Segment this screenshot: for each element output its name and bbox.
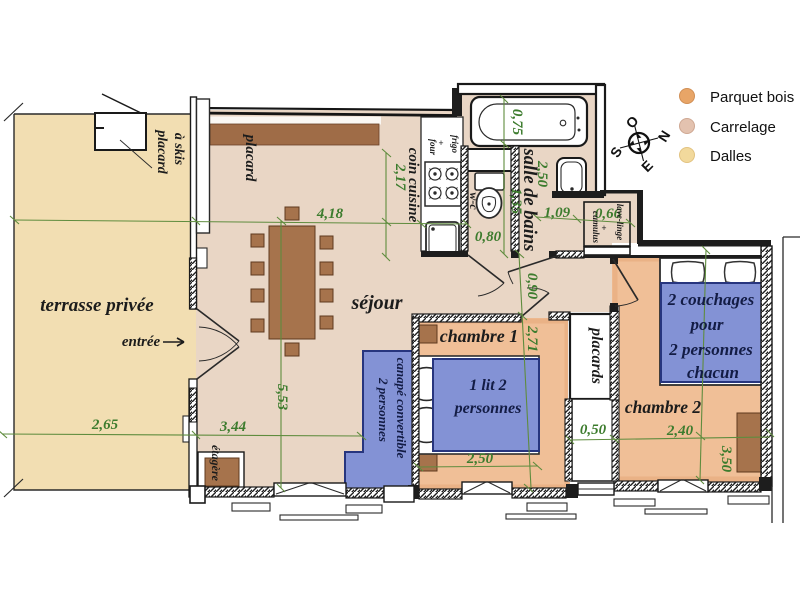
svg-text:0,75: 0,75 — [509, 109, 525, 136]
svg-text:O: O — [622, 112, 641, 131]
svg-text:Carrelage: Carrelage — [710, 119, 776, 136]
svg-text:cumulus: cumulus — [591, 211, 601, 244]
svg-text:placard: placard — [242, 133, 258, 182]
svg-text:chambre 1: chambre 1 — [440, 326, 519, 346]
svg-text:2 couchages: 2 couchages — [667, 290, 755, 309]
svg-text:four: four — [428, 139, 438, 156]
svg-text:à skis: à skis — [171, 133, 186, 166]
svg-text:coin cuisine: coin cuisine — [405, 148, 421, 223]
svg-text:placards: placards — [588, 326, 605, 384]
svg-text:entrée: entrée — [122, 334, 161, 350]
svg-text:w-c: w-c — [467, 192, 481, 210]
svg-text:chacun: chacun — [687, 363, 739, 382]
svg-text:étagère: étagère — [209, 445, 223, 482]
svg-text:5,53: 5,53 — [274, 384, 290, 411]
svg-text:lave-linge: lave-linge — [615, 204, 625, 241]
svg-text:0,80: 0,80 — [475, 229, 502, 245]
svg-text:4,18: 4,18 — [316, 206, 344, 222]
svg-text:séjour: séjour — [350, 292, 402, 314]
svg-text:E: E — [638, 157, 656, 175]
svg-text:2 personnes: 2 personnes — [668, 340, 753, 359]
svg-text:+: + — [438, 138, 443, 148]
svg-text:S: S — [607, 144, 626, 160]
svg-text:placard: placard — [154, 129, 169, 175]
svg-text:0,90: 0,90 — [524, 273, 540, 300]
svg-text:Dalles: Dalles — [710, 148, 752, 165]
svg-text:1 lit 2: 1 lit 2 — [469, 377, 506, 394]
svg-text:3,50: 3,50 — [718, 445, 734, 473]
svg-text:Parquet bois: Parquet bois — [710, 89, 794, 106]
svg-text:3,44: 3,44 — [219, 419, 247, 435]
svg-text:2,50: 2,50 — [466, 451, 494, 467]
svg-text:1,09: 1,09 — [544, 205, 571, 221]
svg-text:2 personnes: 2 personnes — [376, 377, 391, 442]
svg-text:chambre 2: chambre 2 — [625, 397, 702, 417]
svg-text:N: N — [655, 127, 674, 144]
svg-text:frigo: frigo — [450, 135, 460, 154]
svg-text:0,50: 0,50 — [580, 422, 607, 438]
svg-text:+: + — [601, 223, 606, 233]
svg-text:canapé convertible: canapé convertible — [394, 358, 409, 459]
svg-text:2,65: 2,65 — [91, 417, 119, 433]
svg-text:personnes: personnes — [453, 400, 522, 417]
svg-text:2,71: 2,71 — [524, 325, 540, 352]
svg-text:terrasse privée: terrasse privée — [40, 295, 154, 316]
svg-text:pour: pour — [688, 315, 723, 334]
svg-text:salle de bains: salle de bains — [519, 148, 539, 252]
svg-text:2,40: 2,40 — [666, 423, 694, 439]
